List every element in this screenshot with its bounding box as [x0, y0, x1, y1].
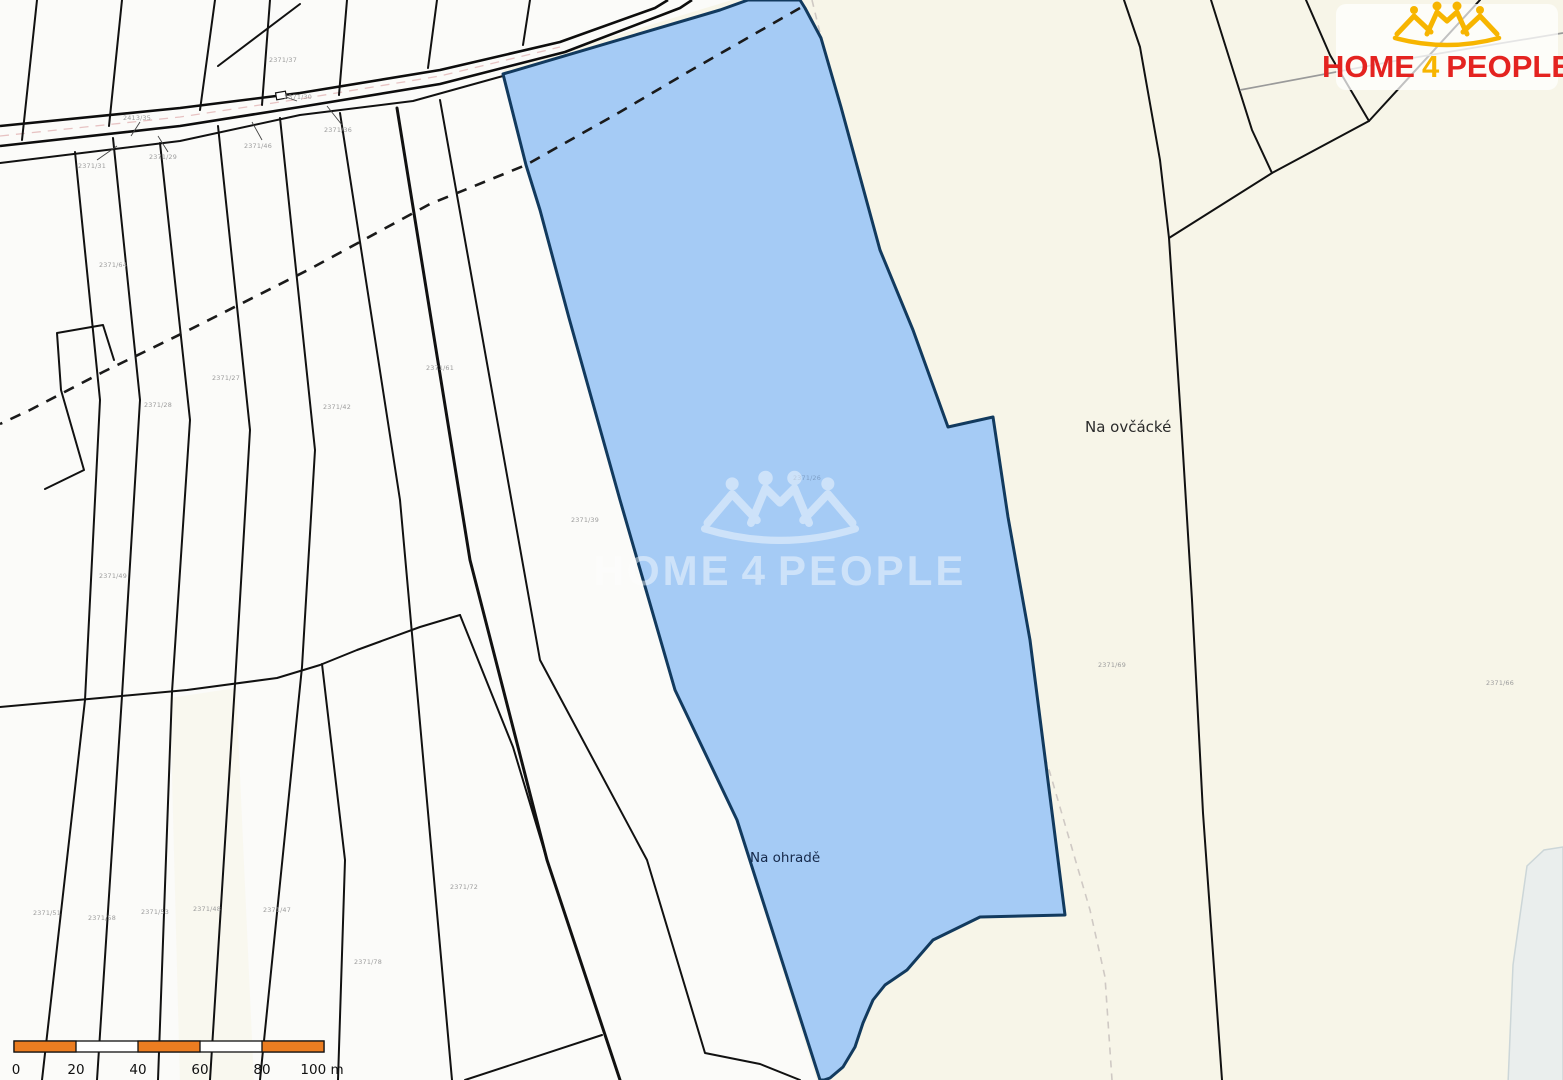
parcel-number: 2371/49: [99, 572, 127, 580]
parcel-number: 2371/61: [426, 364, 454, 372]
watermark-people: PEOPLE: [778, 547, 966, 594]
parcel-number: 2371/66: [1486, 679, 1514, 687]
watermark-4: 4: [742, 547, 768, 594]
logo-people: PEOPLE: [1446, 49, 1563, 84]
parcel-number: 2371/47: [263, 906, 291, 914]
parcel-number: 2371/64: [99, 261, 127, 269]
scale-bar-segment: [262, 1041, 324, 1052]
parcel-number: 2371/46: [244, 142, 272, 150]
parcel-number: 2371/28: [144, 401, 172, 409]
scale-tick-40: 40: [129, 1062, 146, 1078]
parcel-number: 2371/29: [149, 153, 177, 161]
parcel-number: 2371/30: [284, 93, 312, 101]
scale-tick-80: 80: [253, 1062, 270, 1078]
logo-home: HOME: [1322, 49, 1415, 84]
brand-logo[interactable]: HOME4PEOPLE: [1322, 2, 1563, 91]
parcel-number: 2371/69: [1098, 661, 1126, 669]
scale-tick-100m: 100 m: [300, 1062, 343, 1078]
parcel-number: 2371/31: [78, 162, 106, 170]
parcel-number: 2371/27: [212, 374, 240, 382]
map-canvas[interactable]: 2371/37 2413/35 2371/31 2371/29 2371/46 …: [0, 0, 1563, 1080]
parcel-number: 2371/39: [571, 516, 599, 524]
scale-tick-20: 20: [67, 1062, 84, 1078]
cadastral-map-screenshot: 2371/37 2413/35 2371/31 2371/29 2371/46 …: [0, 0, 1563, 1080]
locality-label-na-ovcacke: Na ovčácké: [1085, 418, 1171, 436]
scale-bar-segment: [138, 1041, 200, 1052]
locality-label-na-ohrade: Na ohradě: [750, 850, 820, 866]
parcel-number: 2413/35: [123, 114, 151, 122]
scale-tick-0: 0: [12, 1062, 21, 1078]
parcel-number: 2371/36: [324, 126, 352, 134]
watermark-logo-text: HOME4PEOPLE: [594, 547, 967, 594]
parcel-number: 2371/48: [193, 905, 221, 913]
parcel-number: 2371/53: [141, 908, 169, 916]
scale-tick-60: 60: [191, 1062, 208, 1078]
watermark-home: HOME: [594, 547, 732, 594]
parcel-number: 2371/37: [269, 56, 297, 64]
parcel-number: 2371/42: [323, 403, 351, 411]
parcel-number: 2371/72: [450, 883, 478, 891]
parcel-number: 2371/51: [33, 909, 61, 917]
parcel-number: 2371/58: [88, 914, 116, 922]
logo-4: 4: [1422, 49, 1440, 84]
scale-bar-segment: [14, 1041, 76, 1052]
parcel-number: 2371/78: [354, 958, 382, 966]
